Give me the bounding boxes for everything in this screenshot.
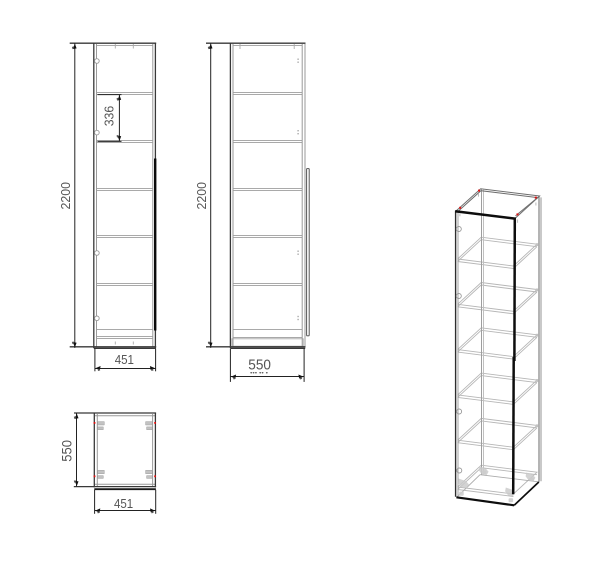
svg-text:2200: 2200	[194, 182, 209, 210]
svg-text:550: 550	[58, 440, 74, 462]
svg-text:451: 451	[114, 496, 133, 511]
svg-text:2200: 2200	[58, 182, 73, 210]
svg-text:••• •• •: ••• •• •	[250, 371, 268, 377]
svg-text:451: 451	[115, 352, 134, 367]
svg-text:336: 336	[102, 106, 117, 127]
